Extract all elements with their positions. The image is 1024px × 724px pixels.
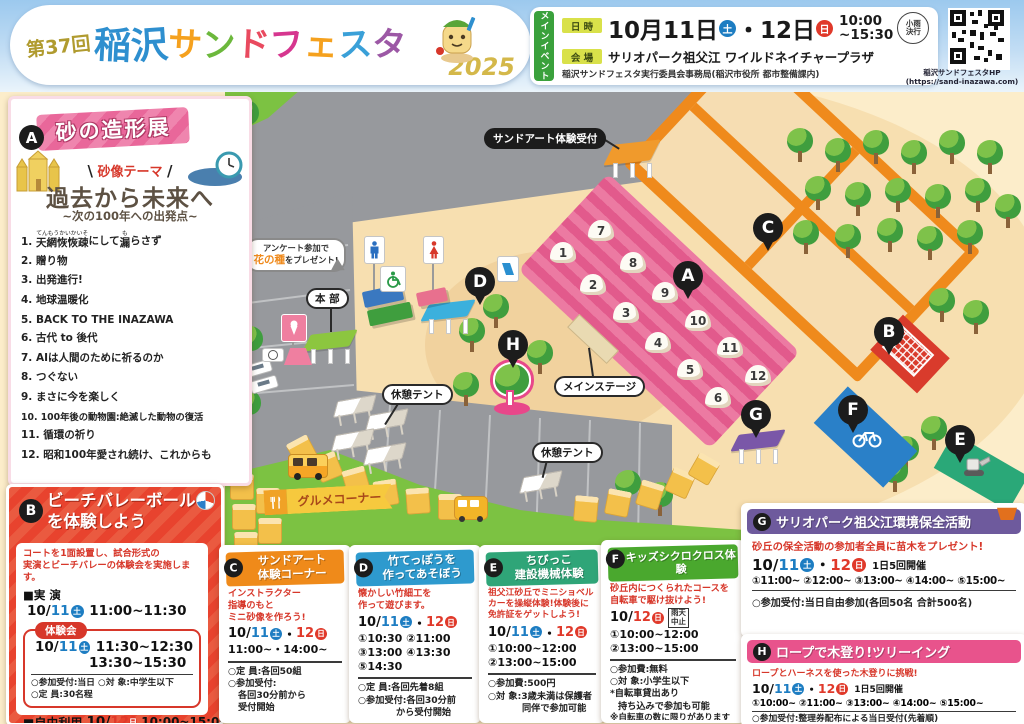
wheelchair-access-icon	[380, 266, 406, 292]
badge-b: B	[19, 499, 43, 523]
tree-icon	[939, 130, 965, 166]
badge-d: D	[354, 558, 373, 577]
header-banner: 第37回 稲 沢 サ ン ド フ ェ ス タ 2025	[0, 0, 1024, 92]
food-stall-icon	[232, 504, 256, 530]
schedule-date: 10/11土・12日	[358, 613, 472, 632]
beach-volleyball-details: コートを1面設置し、試合形式の実演とビーチバレーの体験会を実施します。 ■実 演…	[16, 543, 208, 715]
note: ○参加受付:各回30分前	[358, 695, 472, 707]
title-char: タ	[372, 27, 408, 63]
fork-knife-icon	[263, 489, 287, 515]
frequency: 1日5回開催	[854, 682, 903, 695]
description: インストラクター指導のもとミニ砂像を作ろう!	[228, 588, 342, 624]
map-marker-e: E	[945, 425, 975, 455]
note: ○参加受付:	[228, 678, 342, 690]
badge-e: E	[484, 558, 503, 577]
theme-item: 10. 100年後の動物園:絶滅した動物の復活	[21, 404, 243, 423]
note: *自転車貸出あり	[610, 688, 736, 700]
tree-icon	[835, 224, 861, 260]
website-caption: 稲沢サンドフェスタHP(https://sand-inazawa.com)	[900, 68, 1024, 86]
venue-name: サリオパーク祖父江 ワイルドネイチャープラザ	[608, 47, 874, 66]
survey-bubble: アンケート参加で 花の種をプレゼント!	[246, 238, 346, 272]
map-marker-c: C	[753, 213, 783, 243]
map-marker-b: B	[874, 317, 904, 347]
theme-item: 9. まさに今を楽しく	[21, 384, 243, 403]
title-char: フ	[269, 27, 305, 63]
map-marker-h: H	[498, 330, 528, 360]
main-event-tab: メインイベント	[534, 11, 554, 81]
tree-icon	[977, 140, 1003, 176]
tree-icon	[957, 220, 983, 256]
tree-icon	[845, 182, 871, 218]
title-char: 稲	[94, 26, 133, 65]
cyclocross-panel: F キッズシクロクロス体験 砂丘内につくられたコースを自転車で駆け抜けよう! 1…	[601, 540, 745, 723]
description: 懐かしい竹細工を作って遊びます。	[358, 588, 472, 612]
trial-badge: 体験会	[35, 622, 87, 639]
trial-note: ○参加受付:当日 ○対 象:中学生以下	[31, 678, 193, 690]
tree-icon	[885, 178, 911, 214]
note: ○参加費:500円	[488, 678, 596, 690]
theme-label: \ 砂像テーマ /	[11, 161, 249, 180]
note: ○対 象:3歳未満は保護者	[488, 691, 596, 703]
title-char: 沢	[130, 25, 169, 64]
note: ○参加受付:当日自由参加(各回50名 合計500名)	[752, 594, 1016, 609]
note: ○定 員:各回先着8組	[358, 682, 472, 694]
bamboo-gun-title: D 竹てっぽうを作ってあそぼう	[356, 549, 475, 586]
tree-icon	[793, 220, 819, 256]
food-stall-icon	[405, 487, 431, 515]
note: 持ち込みで参加も可能	[610, 701, 736, 713]
schedule-date: 10/11土・12日 1日5回開催	[752, 554, 1016, 575]
theme-item: 12. 昭和100年愛され続け、これからも	[21, 442, 243, 461]
tree-icon	[995, 194, 1021, 230]
free-use-schedule: ■自由利用 10/12日 10:00~15:00	[23, 714, 201, 724]
schedule-date: 10/11土・12日 1日5回開催	[752, 679, 1016, 698]
description: ロープとハーネスを使った木登りに挑戦!	[752, 666, 1016, 679]
slide-sign	[497, 256, 519, 282]
theme-subtitle: ~次の100年への出発点~	[11, 208, 249, 224]
tree-icon	[877, 218, 903, 254]
title-char: ド	[236, 27, 272, 63]
schedule-date: 10/11土・12日	[228, 624, 342, 643]
theme-item: 4. 地球温暖化	[21, 287, 243, 306]
edition-label: 第37回	[25, 28, 92, 62]
organizer-text: 稲沢サンドフェスタ実行委員会事務局(稲沢市役所 都市整備課内)	[562, 67, 819, 80]
honbu-table-icon	[308, 332, 354, 366]
leader-line	[330, 306, 332, 332]
theme-item: 6. 古代 to 後代	[21, 326, 243, 345]
cyclocross-title: F キッズシクロクロス体験	[608, 544, 739, 582]
tree-icon	[929, 288, 955, 324]
food-stall-icon	[573, 495, 599, 523]
schedule-date: 10/12日 雨天中止	[610, 608, 736, 627]
note: 受付開始	[228, 702, 342, 714]
tree-climbing-title: H ロープで木登り!ツリーイング	[747, 640, 1021, 663]
trial-schedule: 10/11土 11:30~12:30	[35, 639, 193, 655]
map-marker-a: A	[673, 261, 703, 291]
schedule-times: 11:00~・14:00~	[228, 643, 342, 657]
food-stall-icon	[604, 488, 633, 518]
event-date: 10月11日土・12日日 10:00~15:30 小雨決行	[608, 11, 929, 45]
trial-note: ○定 員:30名程	[31, 690, 193, 702]
trial-schedule-2: 13:30~15:30	[89, 655, 193, 671]
note: 同伴で参加可能	[488, 703, 596, 715]
bamboo-table-icon	[426, 302, 472, 336]
bamboo-gun-panel: D 竹てっぽうを作ってあそぼう 懐かしい竹細工を作って遊びます。 10/11土・…	[349, 545, 481, 723]
badge-a: A	[19, 125, 44, 150]
title-char: ス	[337, 27, 373, 63]
qr-code	[948, 8, 1010, 70]
event-flyer: 第37回 稲 沢 サ ン ド フ ェ ス タ 2025	[0, 0, 1024, 724]
description: 砂丘の保全活動の参加者全員に苗木をプレゼント!	[752, 538, 1016, 553]
theme-item: 1. てんもうかいかいそ天網恢恢疎にしても漏らさず	[21, 229, 243, 248]
title-char: ェ	[304, 27, 340, 63]
theme-item: 5. BACK TO THE INAZAWA	[21, 307, 243, 326]
saturday-badge: 土	[719, 20, 736, 37]
map-marker-g: G	[741, 400, 771, 430]
seedling-pot-icon	[997, 505, 1017, 520]
beach-ball-icon	[196, 491, 215, 510]
conservation-title: G サリオパーク祖父江環境保全活動	[747, 509, 1021, 534]
frequency: 1日5回開催	[872, 557, 926, 572]
tree-icon	[863, 130, 889, 166]
mens-toilet-icon	[364, 236, 385, 264]
flower-seed-text: 花の種	[253, 254, 285, 266]
bus-icon	[454, 496, 488, 520]
womens-toilet-icon	[423, 236, 444, 264]
schedule-times: ①10:00~ ②11:00~ ③13:00~ ④14:00~ ⑤15:00~	[752, 698, 1016, 709]
badge-c: C	[224, 558, 243, 577]
description: 砂丘内につくられたコースを自転車で駆け抜けよう!	[610, 583, 736, 607]
rain-or-shine-badge: 小雨決行	[897, 12, 929, 44]
badge-f: F	[606, 549, 625, 568]
sign-post	[373, 260, 375, 290]
tree-icon	[527, 340, 553, 376]
tree-icon	[805, 176, 831, 212]
mascot-illustration	[435, 11, 479, 67]
schedule-times: ①10:00~12:00②13:00~15:00	[610, 628, 736, 657]
title-char: ン	[201, 27, 237, 63]
note: ※自転車の数に限りがあります	[610, 713, 736, 723]
description: コートを1面設置し、試合形式の実演とビーチバレーの体験会を実施します。	[23, 548, 201, 584]
demo-label: ■実 演	[23, 587, 201, 603]
parking-sign	[262, 348, 284, 362]
schedule-times: ①10:00~12:00②13:00~15:00	[488, 642, 596, 671]
tree-icon	[453, 372, 479, 408]
sand-art-reception-label: サンドアート体験受付	[484, 128, 606, 149]
theme-item: 7. AIは人間のために祈るのか	[21, 345, 243, 364]
rain-cancel-badge: 雨天中止	[668, 608, 689, 627]
title-char: サ	[168, 27, 204, 63]
construction-machine-panel: E ちびっこ建設機械体験 祖父江砂丘でミニショベルカーを操縦体験!体験後に免許証…	[479, 545, 605, 723]
construction-title: E ちびっこ建設機械体験	[486, 550, 599, 587]
tree-climbing-panel: H ロープで木登り!ツリーイング ロープとハーネスを使った木登りに挑戦! 10/…	[741, 634, 1024, 724]
datetime-label: 日 時	[562, 18, 602, 33]
sunday-badge: 日	[816, 20, 833, 37]
schedule-times: ①10:30 ②11:00③13:00 ④13:30⑤14:30	[358, 632, 472, 675]
theme-item: 11. 循環の祈り	[21, 423, 243, 442]
tree-icon	[901, 140, 927, 176]
beach-volleyball-title: ビーチバレーボールを体験しよう	[47, 491, 196, 532]
food-truck-icon	[288, 454, 328, 478]
badge-g: G	[753, 513, 771, 531]
tree-icon	[963, 300, 989, 336]
note: ○対 象:小学生以下	[610, 676, 736, 688]
sand-art-title: C サンドアート体験コーナー	[226, 549, 345, 586]
badge-h: H	[753, 643, 771, 661]
sign-post	[432, 260, 434, 290]
schedule-times: ①11:00~ ②12:00~ ③13:00~ ④14:00~ ⑤15:00~	[752, 575, 1016, 587]
map-marker-d: D	[465, 267, 495, 297]
main-event-info: メインイベント 日 時 10月11日土・12日日 10:00~15:30 小雨決…	[530, 7, 938, 85]
note: ○参加受付:整理券配布による当日受付(先着順)	[752, 714, 1016, 724]
icecream-sign	[281, 314, 307, 342]
sand-sculpture-panel: 砂の造形展 A \ 砂像テーマ / 過去から未来へ ~次の100年への出発点~ …	[8, 96, 252, 486]
note: ○定 員:各回50組	[228, 666, 342, 678]
rest-tent-label: 休憩テント	[382, 384, 453, 405]
rest-tent-label: 休憩テント	[532, 442, 603, 463]
tree-icon	[917, 226, 943, 262]
demo-schedule: 10/11土 11:00~11:30	[27, 603, 201, 619]
sand-sculpture-title: 砂の造形展	[36, 107, 190, 151]
sand-art-panel: C サンドアート体験コーナー インストラクター指導のもとミニ砂像を作ろう! 10…	[219, 545, 351, 723]
map-marker-f: F	[838, 395, 868, 425]
tree-icon	[921, 416, 947, 452]
main-stage-label: メインステージ	[554, 376, 645, 397]
note: 各回30分前から	[228, 690, 342, 702]
headquarters-label: 本 部	[306, 288, 349, 309]
food-stall-icon	[258, 518, 282, 544]
schedule-date: 10/11土・12日	[488, 623, 596, 642]
theme-item: 3. 出発進行!	[21, 268, 243, 287]
beach-volleyball-panel: B ビーチバレーボールを体験しよう コートを1面設置し、試合形式の実演とビーチバ…	[6, 484, 224, 724]
description: 祖父江砂丘でミニショベルカーを操縦体験!体験後に免許証をゲットしよう!	[488, 588, 596, 622]
conservation-panel: G サリオパーク祖父江環境保全活動 砂丘の保全活動の参加者全員に苗木をプレゼント…	[741, 503, 1024, 637]
theme-item: 2. 贈り物	[21, 248, 243, 267]
tree-icon	[787, 128, 813, 164]
theme-item: 8. つぐない	[21, 365, 243, 384]
note: ○参加費:無料	[610, 664, 736, 676]
tree-icon	[825, 138, 851, 174]
tree-icon	[965, 178, 991, 214]
tree-icon	[483, 294, 509, 330]
trial-session-box: 体験会 10/11土 11:30~12:30 13:30~15:30 ○参加受付…	[23, 629, 201, 708]
venue-label: 会 場	[562, 49, 602, 64]
note: から受付開始	[358, 707, 472, 719]
tree-icon	[925, 184, 951, 220]
event-time: 10:00~15:30	[839, 14, 893, 42]
sculpture-theme-list: 1. てんもうかいかいそ天網恢恢疎にしても漏らさず 2. 贈り物 3. 出発進行…	[21, 229, 243, 462]
event-logo: 第37回 稲 沢 サ ン ド フ ェ ス タ 2025	[10, 5, 531, 85]
